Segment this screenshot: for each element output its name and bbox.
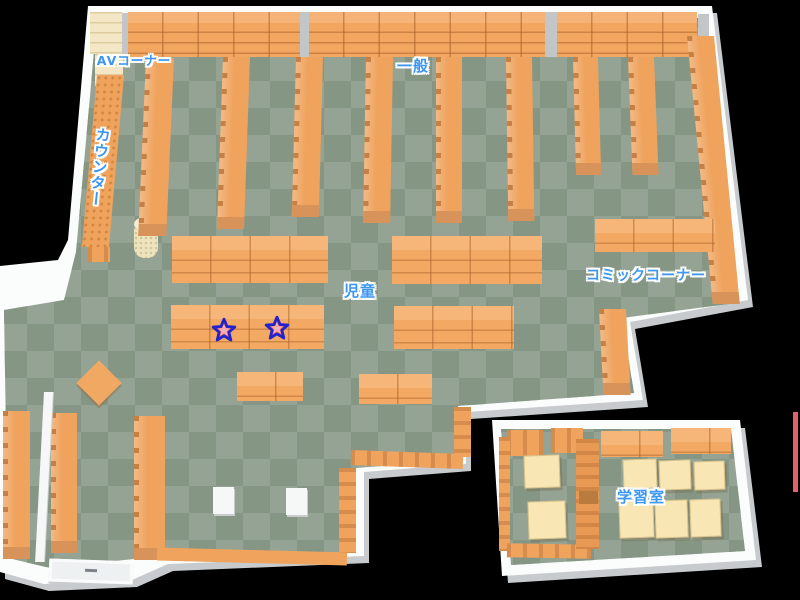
children-shelf-6 — [359, 374, 432, 404]
study-desk-5 — [694, 460, 726, 490]
study-desk-8 — [689, 498, 721, 537]
lower-shelf-2 — [51, 413, 77, 553]
study-desk-4 — [658, 459, 691, 490]
label-study-room: 学習室 — [598, 489, 684, 506]
children-shelf-2 — [392, 236, 542, 284]
comic-shelf-top — [595, 219, 715, 252]
study-shelf-1 — [507, 430, 543, 456]
edge-shelf-3 — [339, 468, 356, 553]
lower-shelf-3 — [134, 416, 165, 560]
study-shelf-4 — [671, 428, 731, 454]
children-shelf-1 — [172, 236, 328, 283]
wall-shelf-bank-3 — [557, 12, 697, 57]
av-shelf-1 — [90, 12, 122, 54]
comic-shelf-side — [599, 309, 631, 395]
label-av-corner: AVコーナー — [88, 54, 180, 68]
shelf-row-5 — [436, 57, 462, 223]
map-edge-accent — [793, 412, 798, 492]
wall-pillar-2 — [300, 12, 309, 57]
study-desk-1 — [523, 454, 560, 488]
edge-shelf-1 — [454, 407, 471, 457]
label-children: 児童 — [329, 283, 391, 300]
study-desk-3 — [622, 458, 657, 489]
children-shelf-5 — [237, 372, 303, 401]
shelf-row-4 — [363, 57, 393, 223]
study-left-wall-shelf — [499, 437, 510, 551]
children-shelf-3 — [171, 305, 324, 349]
label-general: 一般 — [383, 58, 443, 75]
star-marker-1[interactable] — [211, 317, 237, 343]
study-desk-2 — [527, 500, 566, 539]
entrance-door[interactable] — [49, 559, 134, 585]
children-shelf-4 — [394, 306, 514, 349]
lower-shelf-1 — [3, 411, 30, 559]
door-handle — [85, 569, 97, 572]
library-floor-map: AVコーナー カウンター 一般 児童 コミックコーナー 学習室 — [0, 0, 800, 600]
wall-shelf-bank-2 — [309, 12, 545, 57]
wall-pillar-1 — [121, 13, 128, 57]
study-shelf-3 — [601, 431, 663, 457]
shelf-row-8 — [628, 57, 659, 175]
label-comic-corner: コミックコーナー — [572, 268, 720, 284]
small-shelf-box — [88, 247, 110, 262]
shelf-row-3 — [292, 57, 323, 217]
shelf-row-7 — [573, 57, 601, 175]
wall-shelf-bank-1 — [128, 12, 300, 57]
star-marker-2[interactable] — [264, 315, 290, 341]
study-divider-gap — [579, 491, 598, 504]
kiosk-2 — [286, 488, 307, 515]
wall-pillar-3 — [545, 12, 557, 57]
kiosk-1 — [213, 487, 234, 514]
shelf-row-6 — [506, 57, 534, 221]
